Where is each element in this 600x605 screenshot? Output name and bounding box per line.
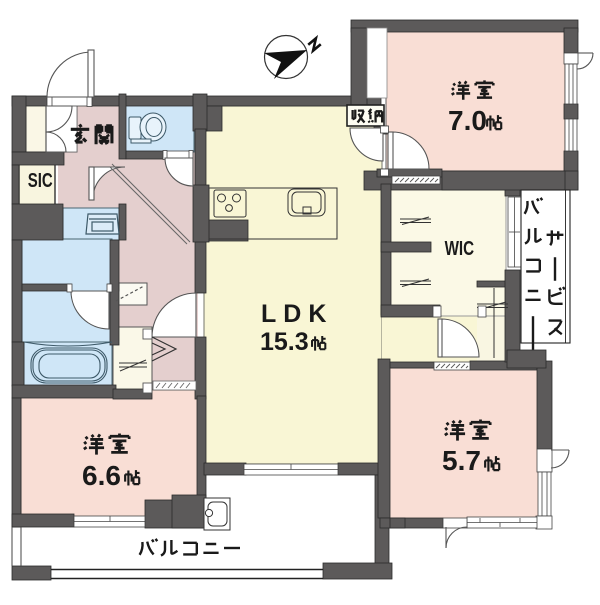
svg-text:5.7: 5.7 — [442, 445, 481, 476]
svg-text:SIC: SIC — [28, 169, 53, 192]
svg-text:WIC: WIC — [445, 237, 475, 260]
svg-text:6.6: 6.6 — [82, 460, 121, 491]
svg-text:7.0: 7.0 — [448, 105, 487, 136]
svg-text:LDK: LDK — [261, 300, 333, 328]
svg-text:15.3: 15.3 — [260, 328, 309, 356]
